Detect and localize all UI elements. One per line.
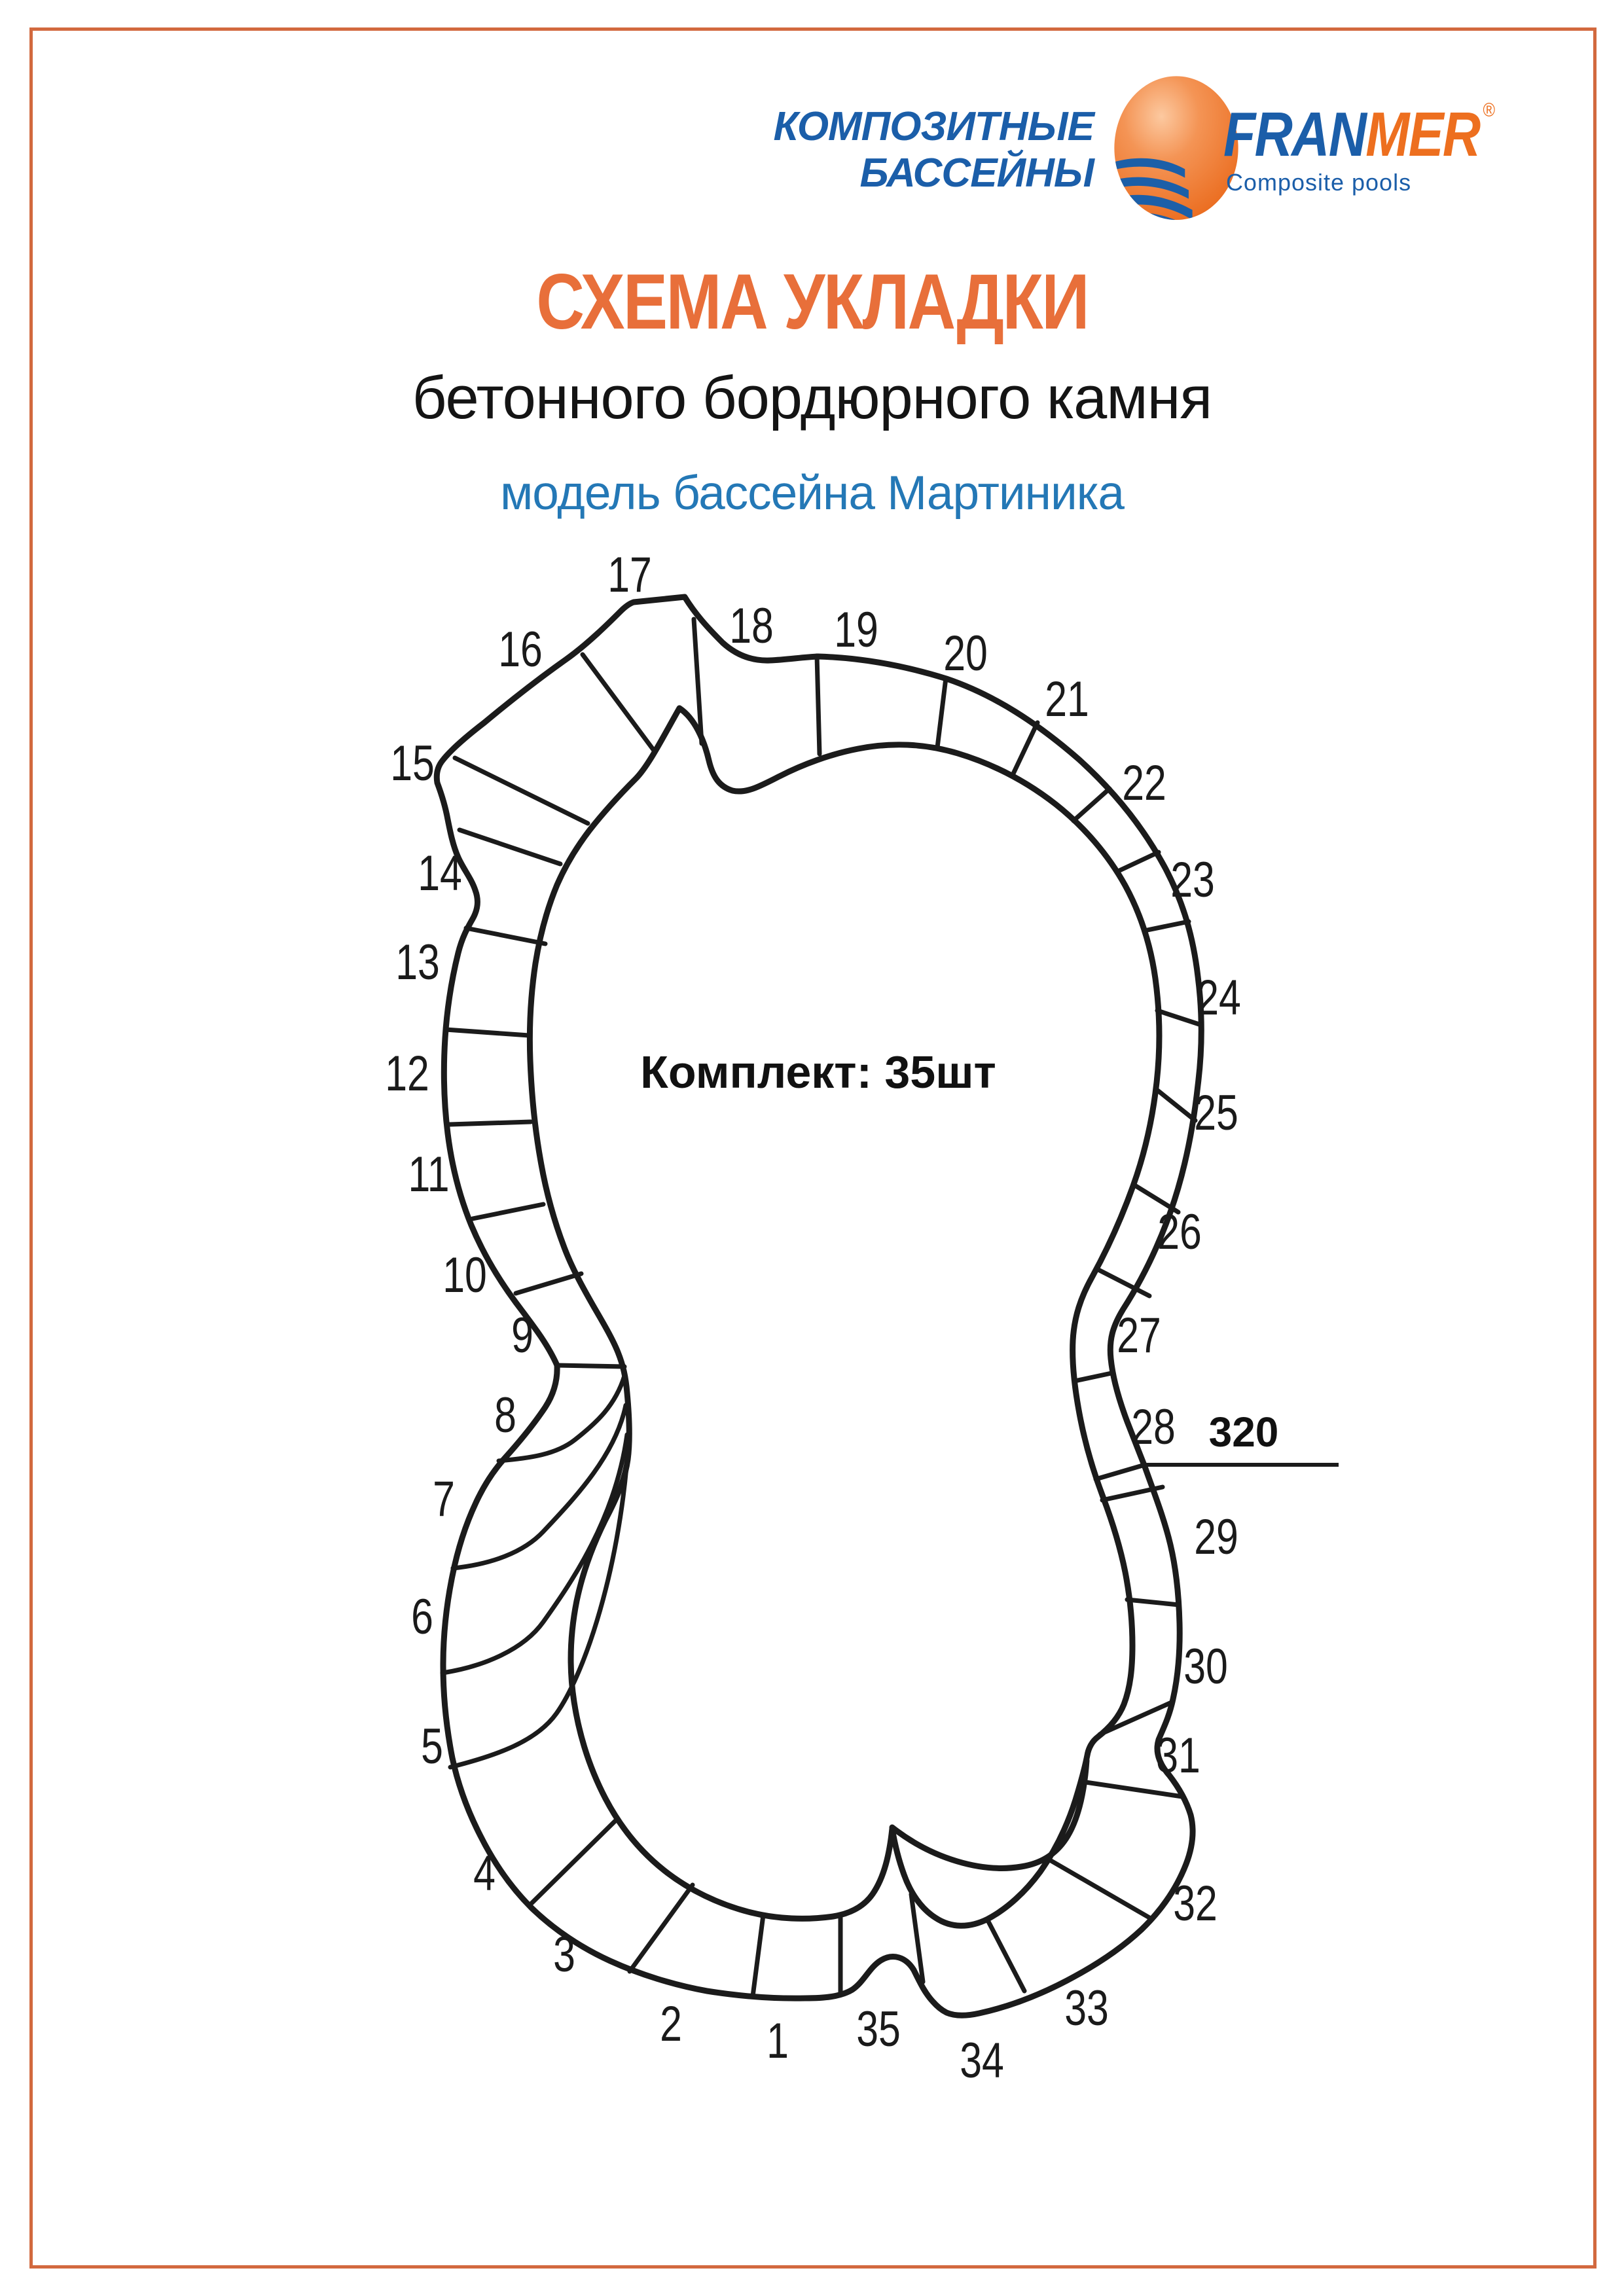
stone-divider: [499, 1376, 624, 1461]
stone-divider: [466, 928, 545, 944]
segment-number-label: 26: [1157, 1204, 1202, 1259]
segment-number-label: 12: [385, 1045, 429, 1101]
segment-number-label: 34: [960, 2032, 1004, 2088]
stone-divider: [455, 758, 588, 823]
stone-dividers: [442, 619, 1201, 1996]
segment-number-label: 1: [767, 2013, 789, 2068]
segment-number-label: 22: [1122, 755, 1166, 810]
segment-number-label: 16: [498, 621, 543, 677]
pool-outline: [530, 708, 1159, 1926]
segment-number-label: 20: [943, 625, 988, 681]
segment-number-label: 33: [1064, 1980, 1109, 2036]
stone-divider: [446, 1030, 529, 1035]
stone-divider: [1081, 1782, 1182, 1797]
segment-number-label: 13: [395, 934, 440, 990]
segment-number-label: 25: [1194, 1085, 1238, 1140]
segment-number-label: 19: [834, 601, 878, 657]
layout-diagram: 320 Комплект: 35шт 123456789101112131415…: [0, 0, 1624, 2296]
stone-divider: [516, 1274, 581, 1293]
page: КОМПОЗИТНЫЕ БАССЕЙНЫ FRAN: [0, 0, 1624, 2296]
stone-divider: [557, 1365, 624, 1367]
segment-number-label: 4: [473, 1845, 496, 1901]
segment-number-label: 8: [494, 1387, 516, 1443]
stone-divider: [1144, 922, 1189, 931]
segment-number-label: 15: [390, 735, 435, 791]
stone-divider: [1013, 723, 1038, 774]
segment-number-label: 31: [1156, 1727, 1200, 1783]
stone-divider: [937, 678, 946, 747]
segment-number-label: 21: [1045, 671, 1089, 726]
segment-number-label: 29: [1194, 1509, 1238, 1564]
segment-number-label: 28: [1131, 1399, 1176, 1454]
segment-number-label: 2: [660, 1996, 682, 2051]
segment-number-label: 30: [1183, 1638, 1228, 1694]
stone-divider: [450, 1467, 626, 1767]
segment-number-label: 17: [607, 547, 652, 602]
segment-number-label: 11: [408, 1146, 449, 1202]
stone-divider: [460, 830, 560, 864]
segment-number-label: 23: [1170, 852, 1215, 907]
segment-number-label: 35: [856, 2001, 901, 2056]
segment-number-label: 24: [1197, 969, 1241, 1025]
stone-divider: [1157, 1011, 1201, 1025]
segment-number-label: 9: [511, 1307, 533, 1363]
stone-divider: [442, 1435, 627, 1673]
dimension-mark-line: [1096, 1465, 1145, 1479]
stone-divider: [988, 1922, 1024, 1991]
stone-divider: [753, 1915, 763, 1996]
stone-divider: [817, 656, 820, 754]
segment-number-label: 6: [411, 1588, 433, 1644]
segment-number-label: 27: [1117, 1307, 1161, 1363]
stone-divider: [1050, 1860, 1149, 1918]
segment-number-labels: 1234567891011121314151617181920212223242…: [385, 547, 1241, 2088]
stone-divider: [453, 1405, 626, 1568]
stone-divider: [583, 655, 655, 751]
segment-number-label: 7: [433, 1471, 455, 1526]
stone-divider: [1074, 789, 1110, 821]
stone-divider: [630, 1885, 693, 1971]
stone-divider: [450, 1122, 531, 1124]
stair-chord-line: [892, 1761, 1087, 1868]
segment-number-label: 14: [418, 845, 462, 901]
kit-count-label: Комплект: 35шт: [640, 1047, 996, 1098]
segment-number-label: 32: [1173, 1875, 1218, 1931]
segment-number-label: 10: [442, 1247, 487, 1302]
stone-divider: [473, 1204, 543, 1219]
segment-number-label: 18: [729, 598, 774, 653]
dimension-value: 320: [1209, 1408, 1279, 1456]
stone-divider: [1075, 1373, 1111, 1381]
stone-divider: [1156, 1089, 1195, 1121]
stone-divider: [1127, 1600, 1179, 1605]
stone-divider: [1117, 852, 1159, 872]
stone-divider: [532, 1821, 615, 1903]
segment-number-label: 5: [421, 1718, 443, 1774]
segment-number-label: 3: [553, 1926, 575, 1982]
